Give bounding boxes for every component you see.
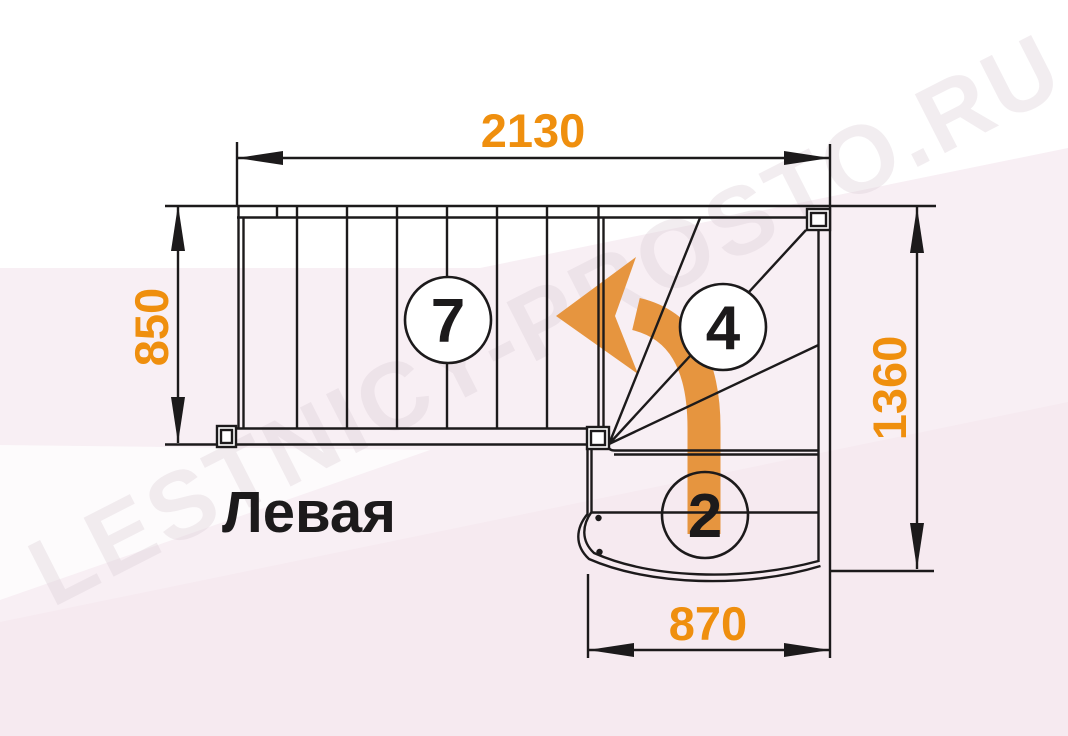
baluster-dot <box>595 515 601 521</box>
step-count-upper-flight: 7 <box>431 287 465 356</box>
dim-arrowhead-left-icon <box>237 151 283 165</box>
stair-plan-page: LESTNICY-PROSTO.RU <box>0 0 1068 736</box>
stair-plan-drawing: LESTNICY-PROSTO.RU <box>0 0 1068 736</box>
background-tints <box>0 148 1068 736</box>
step-count-lower-flight: 2 <box>688 482 722 551</box>
dimension-bottom-value: 870 <box>669 597 747 650</box>
dimension-right-value: 1360 <box>863 336 916 441</box>
newel-post-bottom-left-inner <box>221 430 232 443</box>
newel-post-corner-inner <box>591 431 605 445</box>
step-count-winders: 4 <box>706 294 741 363</box>
stair-orientation-title: Левая <box>222 480 396 545</box>
newel-post-top-right-inner <box>811 213 826 226</box>
dimension-left-value: 850 <box>125 288 178 366</box>
baluster-dot <box>596 549 602 555</box>
dim-arrowhead-up-icon <box>171 205 185 251</box>
dimension-top-value: 2130 <box>481 104 586 157</box>
